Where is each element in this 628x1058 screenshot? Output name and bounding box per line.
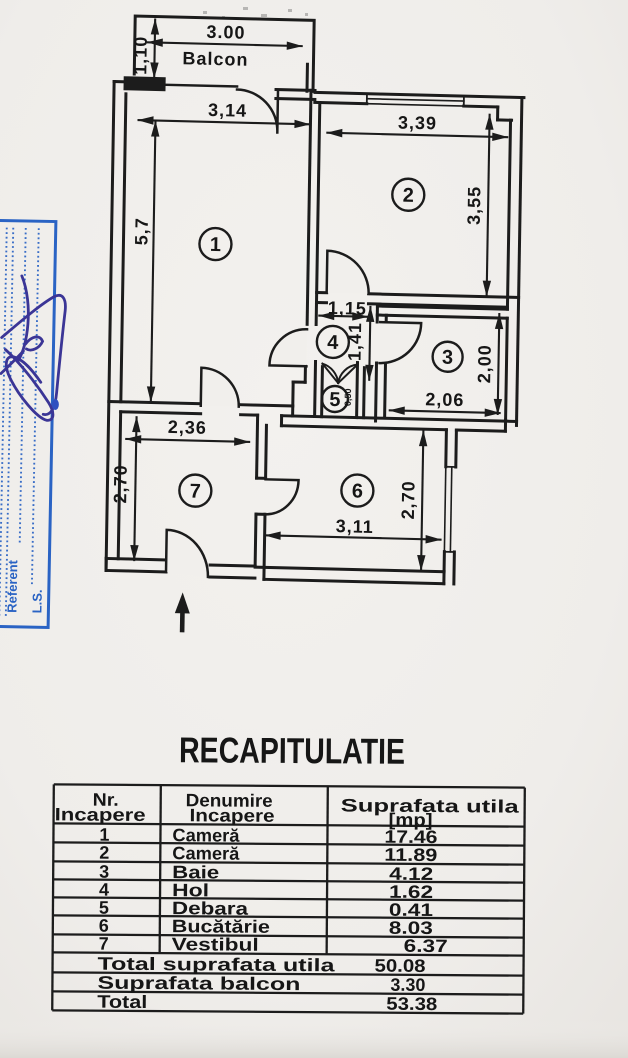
svg-text:2,00: 2,00 <box>474 344 495 384</box>
svg-text:1,10: 1,10 <box>130 35 151 75</box>
svg-text:3,55: 3,55 <box>464 186 485 226</box>
svg-text:RECAPITULATIE: RECAPITULATIE <box>179 729 405 772</box>
svg-text:Vestibul: Vestibul <box>172 934 259 955</box>
svg-text:7: 7 <box>190 480 201 502</box>
svg-text:2,36: 2,36 <box>168 417 207 438</box>
svg-text:1,41: 1,41 <box>345 322 366 362</box>
svg-text:1,15: 1,15 <box>328 298 367 319</box>
svg-text:11.89: 11.89 <box>384 845 437 865</box>
svg-text:Incapere: Incapere <box>190 805 275 826</box>
svg-text:2,06: 2,06 <box>425 389 464 410</box>
svg-text:L.S.: L.S. <box>29 589 44 613</box>
svg-text:3.00: 3.00 <box>206 22 245 43</box>
svg-text:1: 1 <box>210 234 221 256</box>
svg-text:7: 7 <box>99 934 109 954</box>
svg-text:3,11: 3,11 <box>336 516 374 537</box>
svg-text:Balcon: Balcon <box>182 48 248 70</box>
svg-text:2: 2 <box>403 185 414 207</box>
svg-text:Suprafata balcon: Suprafata balcon <box>97 973 300 994</box>
svg-text:0,50: 0,50 <box>343 388 353 406</box>
svg-text:4: 4 <box>327 332 339 354</box>
svg-text:Referent: Referent <box>4 559 20 613</box>
svg-text:53.38: 53.38 <box>386 994 437 1014</box>
svg-text:6.37: 6.37 <box>404 936 448 956</box>
svg-text:3.30: 3.30 <box>390 975 425 995</box>
svg-text:2,70: 2,70 <box>398 480 419 520</box>
svg-text:5: 5 <box>329 389 340 411</box>
svg-text:3: 3 <box>442 347 453 369</box>
svg-text:Cameră: Cameră <box>172 843 240 863</box>
svg-text:Incapere: Incapere <box>55 804 146 825</box>
svg-text:3,14: 3,14 <box>208 100 247 121</box>
svg-text:50.08: 50.08 <box>374 956 425 976</box>
svg-text:5,7: 5,7 <box>131 217 151 246</box>
svg-text:2: 2 <box>99 843 109 863</box>
svg-text:2,70: 2,70 <box>110 464 131 504</box>
svg-text:3,39: 3,39 <box>398 112 437 133</box>
svg-text:Total: Total <box>97 992 147 1012</box>
svg-text:6: 6 <box>352 480 363 502</box>
